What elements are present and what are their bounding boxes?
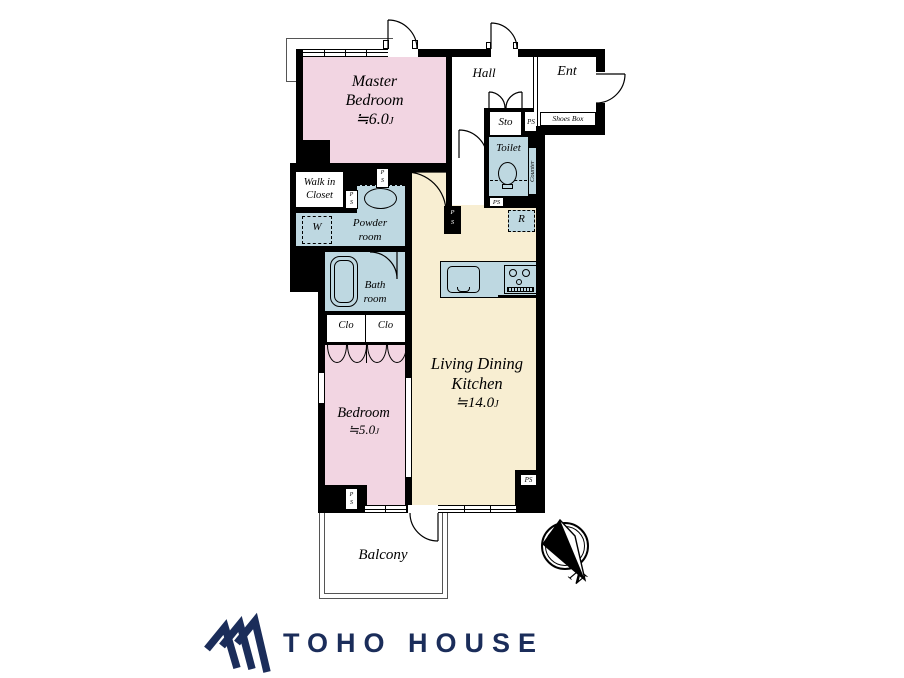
kitchen-sink-notch <box>457 287 470 292</box>
washer-label: W <box>302 221 332 234</box>
window-ldk-bottom <box>438 505 516 513</box>
window-bedroom-left <box>318 373 325 403</box>
powder-sink-oval <box>364 188 397 209</box>
stove-burner <box>509 269 517 277</box>
stove-burner <box>516 279 522 285</box>
wall-ent-step <box>538 126 605 135</box>
closet-right-label: Clo <box>365 320 406 333</box>
pipe-space-box: PS <box>444 206 461 234</box>
pipe-space-box: PS <box>489 197 504 207</box>
toilet-bowl <box>498 162 517 185</box>
entrance-door-opening <box>596 72 605 103</box>
toilet-base <box>502 184 513 189</box>
shoes-box-label: Shoes Box <box>540 114 596 123</box>
door-jamb <box>383 40 389 49</box>
window-master-top <box>303 49 388 57</box>
door-opening-top-2 <box>491 49 518 57</box>
hall-corridor-area <box>452 108 484 208</box>
powder-room-label: Powder room <box>330 217 410 245</box>
balcony-label: Balcony <box>333 546 433 564</box>
ldk-label: Living Dining Kitchen ≒14.0J <box>412 354 542 412</box>
ent-label: Ent <box>538 64 596 81</box>
stove-burner <box>522 269 530 277</box>
hall-label: Hall <box>452 65 516 81</box>
bedroom-label: Bedroom ≒5.0J <box>322 405 405 438</box>
wall-master-bottom <box>290 163 452 172</box>
toilet-label: Toilet <box>489 142 528 155</box>
toho-house-logo-icon <box>202 616 276 674</box>
exterior-outline-top <box>286 38 393 39</box>
pipe-space-box: PS <box>520 474 537 486</box>
pipe-space-box: PS <box>376 168 389 188</box>
wall-master-left <box>296 49 303 170</box>
balcony-door-opening <box>408 505 438 513</box>
sliding-partition-bedroom-ldk <box>405 378 412 477</box>
pipe-space-box: PS <box>345 190 358 209</box>
door-jamb <box>486 42 491 49</box>
door-opening-top-1 <box>388 49 418 57</box>
wall-right-mid <box>596 101 605 135</box>
wall-right-upper <box>596 49 605 74</box>
exterior-outline-left <box>286 38 287 82</box>
stove-grill <box>507 287 534 292</box>
walk-in-closet-label: Walk in Closet <box>294 176 345 202</box>
floor-plan-page: PS PS PS PS PS PS PS <box>0 0 904 678</box>
sto-label: Sto <box>489 116 522 129</box>
wall-corridor-ldk <box>446 172 452 208</box>
pipe-space-box: PS <box>345 488 358 510</box>
counter-small-label: Counter <box>293 252 316 257</box>
closet-left-label: Clo <box>326 320 366 333</box>
refrigerator-label: R <box>508 213 535 226</box>
master-bedroom-label: Master Bedroom ≒6.0J <box>303 72 446 130</box>
stove-base-line <box>498 295 536 297</box>
window-bedroom-bottom <box>365 505 406 513</box>
wall-sw-corner-block <box>318 485 367 513</box>
toilet-counter-label: Counter <box>528 148 538 194</box>
bath-room-label: Bath room <box>345 279 405 307</box>
closet-door-divider <box>366 345 367 363</box>
door-jamb <box>412 40 418 49</box>
toho-house-logo-text: TOHO HOUSE <box>283 628 544 659</box>
door-jamb <box>513 42 518 49</box>
wall-master-sw-notch <box>303 140 330 163</box>
